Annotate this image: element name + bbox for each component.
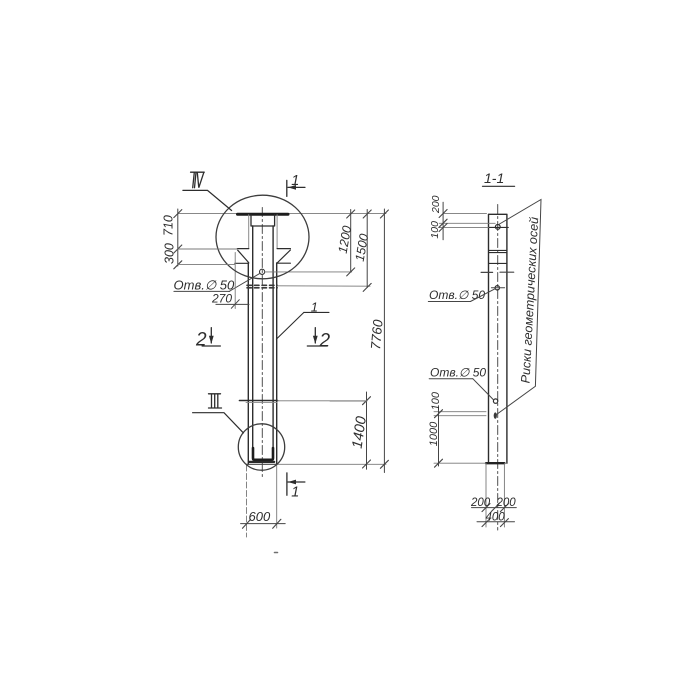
svg-text:1: 1 [291, 485, 299, 501]
svg-text:Отв.∅ 50: Отв.∅ 50 [430, 366, 486, 380]
svg-text:100: 100 [430, 391, 442, 410]
svg-text:1-1: 1-1 [484, 170, 504, 186]
svg-text:2: 2 [195, 330, 207, 351]
svg-text:270: 270 [211, 292, 232, 306]
svg-text:1: 1 [291, 173, 299, 189]
svg-text:Отв.∅ 50: Отв.∅ 50 [174, 278, 236, 293]
svg-text:600: 600 [249, 509, 271, 524]
svg-text:1200: 1200 [336, 225, 355, 255]
svg-text:7760: 7760 [368, 319, 386, 351]
svg-text:200: 200 [430, 195, 442, 214]
svg-text:400: 400 [486, 512, 506, 524]
svg-text:200: 200 [470, 497, 491, 509]
svg-text:1000: 1000 [428, 421, 440, 446]
svg-text:100: 100 [429, 221, 441, 239]
svg-text:200: 200 [496, 497, 517, 509]
svg-text:Отв.∅ 50: Отв.∅ 50 [429, 288, 485, 302]
svg-text:710: 710 [162, 215, 176, 236]
svg-text:1500: 1500 [353, 233, 372, 263]
svg-text:300: 300 [163, 243, 177, 264]
svg-text:2: 2 [319, 331, 331, 352]
